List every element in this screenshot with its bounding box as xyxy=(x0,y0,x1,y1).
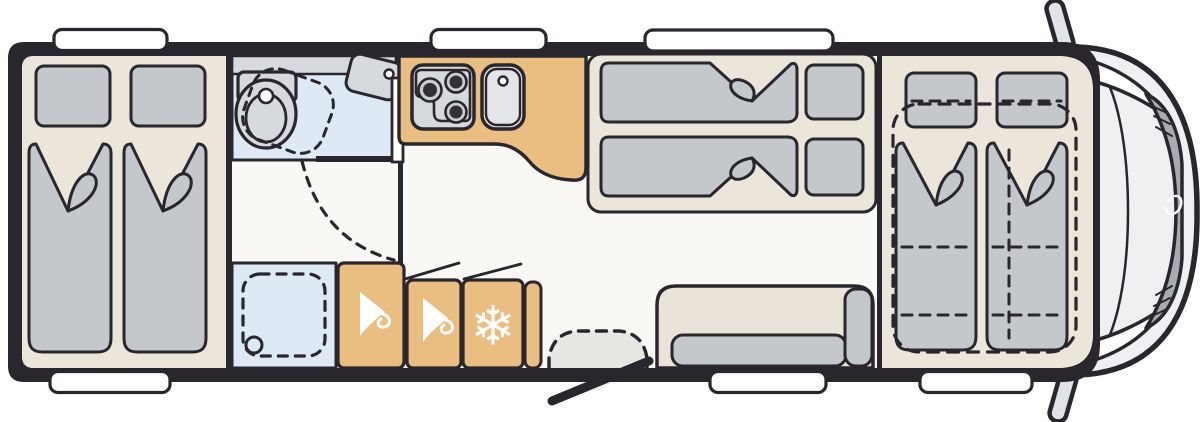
bed-pillow xyxy=(806,139,863,195)
front-drop-down-beds xyxy=(882,56,1093,368)
stove-burner-icon xyxy=(446,72,467,93)
kitchen-sink xyxy=(482,65,524,129)
sofa-side-seat xyxy=(845,289,872,366)
stove xyxy=(412,65,474,129)
entry-step xyxy=(549,331,647,368)
stove-burner-icon xyxy=(446,102,467,123)
mid-double-beds xyxy=(588,54,876,212)
washroom-wall xyxy=(316,156,402,162)
window-bottom-1 xyxy=(50,372,170,393)
stove-burner-icon xyxy=(419,79,442,102)
sofa-seat xyxy=(672,335,846,366)
storage-row: ❄ xyxy=(338,263,541,368)
floor-plan: ❄ xyxy=(0,0,1200,422)
bed-pillow xyxy=(36,66,110,126)
floor-plan-drawing: ❄ xyxy=(0,0,1200,422)
window-top-2 xyxy=(431,30,546,51)
window-top-3 xyxy=(645,30,833,51)
bed-pillow xyxy=(806,65,863,119)
rear-bed-left xyxy=(29,66,111,352)
rear-twin-beds xyxy=(22,56,232,368)
flush-button-icon xyxy=(259,89,273,103)
snowflake-icon: ❄ xyxy=(470,295,515,358)
rear-bed-right xyxy=(124,66,206,352)
window-top-1 xyxy=(54,30,167,51)
lounge-sofa xyxy=(657,286,873,368)
window-bottom-2 xyxy=(710,372,826,393)
faucet-icon xyxy=(499,77,508,86)
washroom-wall-side xyxy=(398,158,403,263)
front-bed-left xyxy=(896,73,976,350)
front-bed-right xyxy=(987,73,1067,350)
storage-step xyxy=(525,282,541,368)
shower xyxy=(232,263,336,368)
partition-wall xyxy=(877,56,882,368)
entry-door xyxy=(549,331,649,401)
window-bottom-3 xyxy=(920,372,1032,393)
